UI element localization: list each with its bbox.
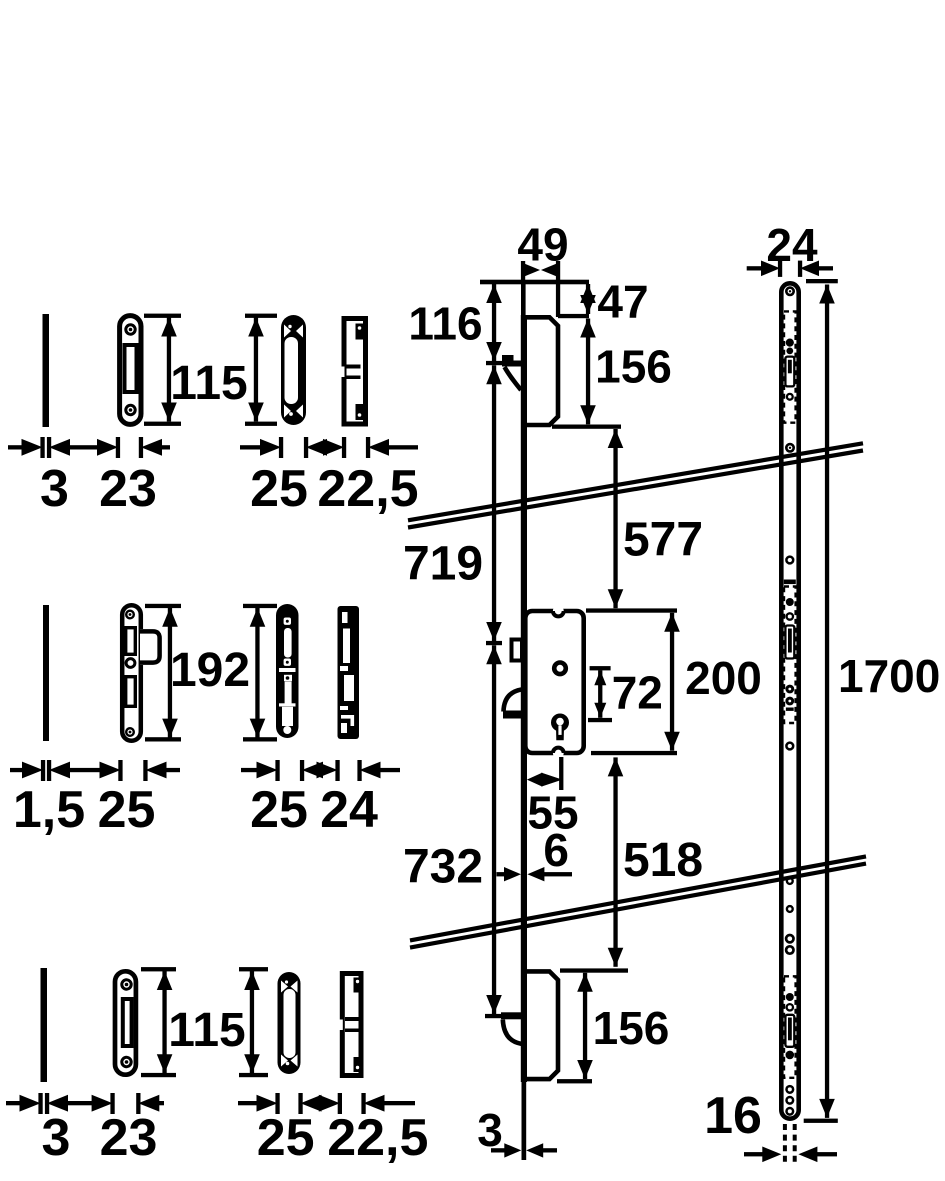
- svg-text:72: 72: [612, 667, 663, 719]
- svg-text:115: 115: [170, 357, 247, 410]
- svg-text:1700: 1700: [838, 650, 940, 702]
- svg-text:3: 3: [477, 1104, 503, 1156]
- svg-text:156: 156: [593, 1002, 670, 1054]
- svg-text:23: 23: [99, 460, 157, 518]
- svg-text:192: 192: [170, 644, 250, 697]
- svg-text:3: 3: [40, 460, 69, 518]
- svg-text:3: 3: [42, 1109, 71, 1167]
- svg-text:25: 25: [98, 781, 156, 839]
- svg-text:116: 116: [408, 298, 482, 350]
- svg-text:719: 719: [403, 538, 483, 591]
- svg-text:24: 24: [766, 219, 818, 271]
- svg-text:732: 732: [403, 841, 483, 894]
- svg-text:156: 156: [595, 341, 672, 393]
- svg-text:577: 577: [623, 514, 703, 567]
- svg-text:23: 23: [100, 1109, 158, 1167]
- svg-text:25: 25: [257, 1109, 315, 1167]
- svg-text:1,5: 1,5: [13, 781, 85, 839]
- svg-text:47: 47: [597, 276, 648, 328]
- svg-text:22,5: 22,5: [327, 1109, 428, 1167]
- svg-text:6: 6: [543, 824, 569, 876]
- svg-text:16: 16: [704, 1087, 762, 1145]
- svg-text:200: 200: [685, 652, 762, 704]
- svg-text:25: 25: [250, 781, 308, 839]
- svg-text:22,5: 22,5: [317, 460, 418, 518]
- svg-text:115: 115: [168, 1004, 245, 1057]
- svg-text:518: 518: [623, 834, 703, 887]
- svg-text:25: 25: [250, 460, 308, 518]
- svg-text:24: 24: [320, 781, 378, 839]
